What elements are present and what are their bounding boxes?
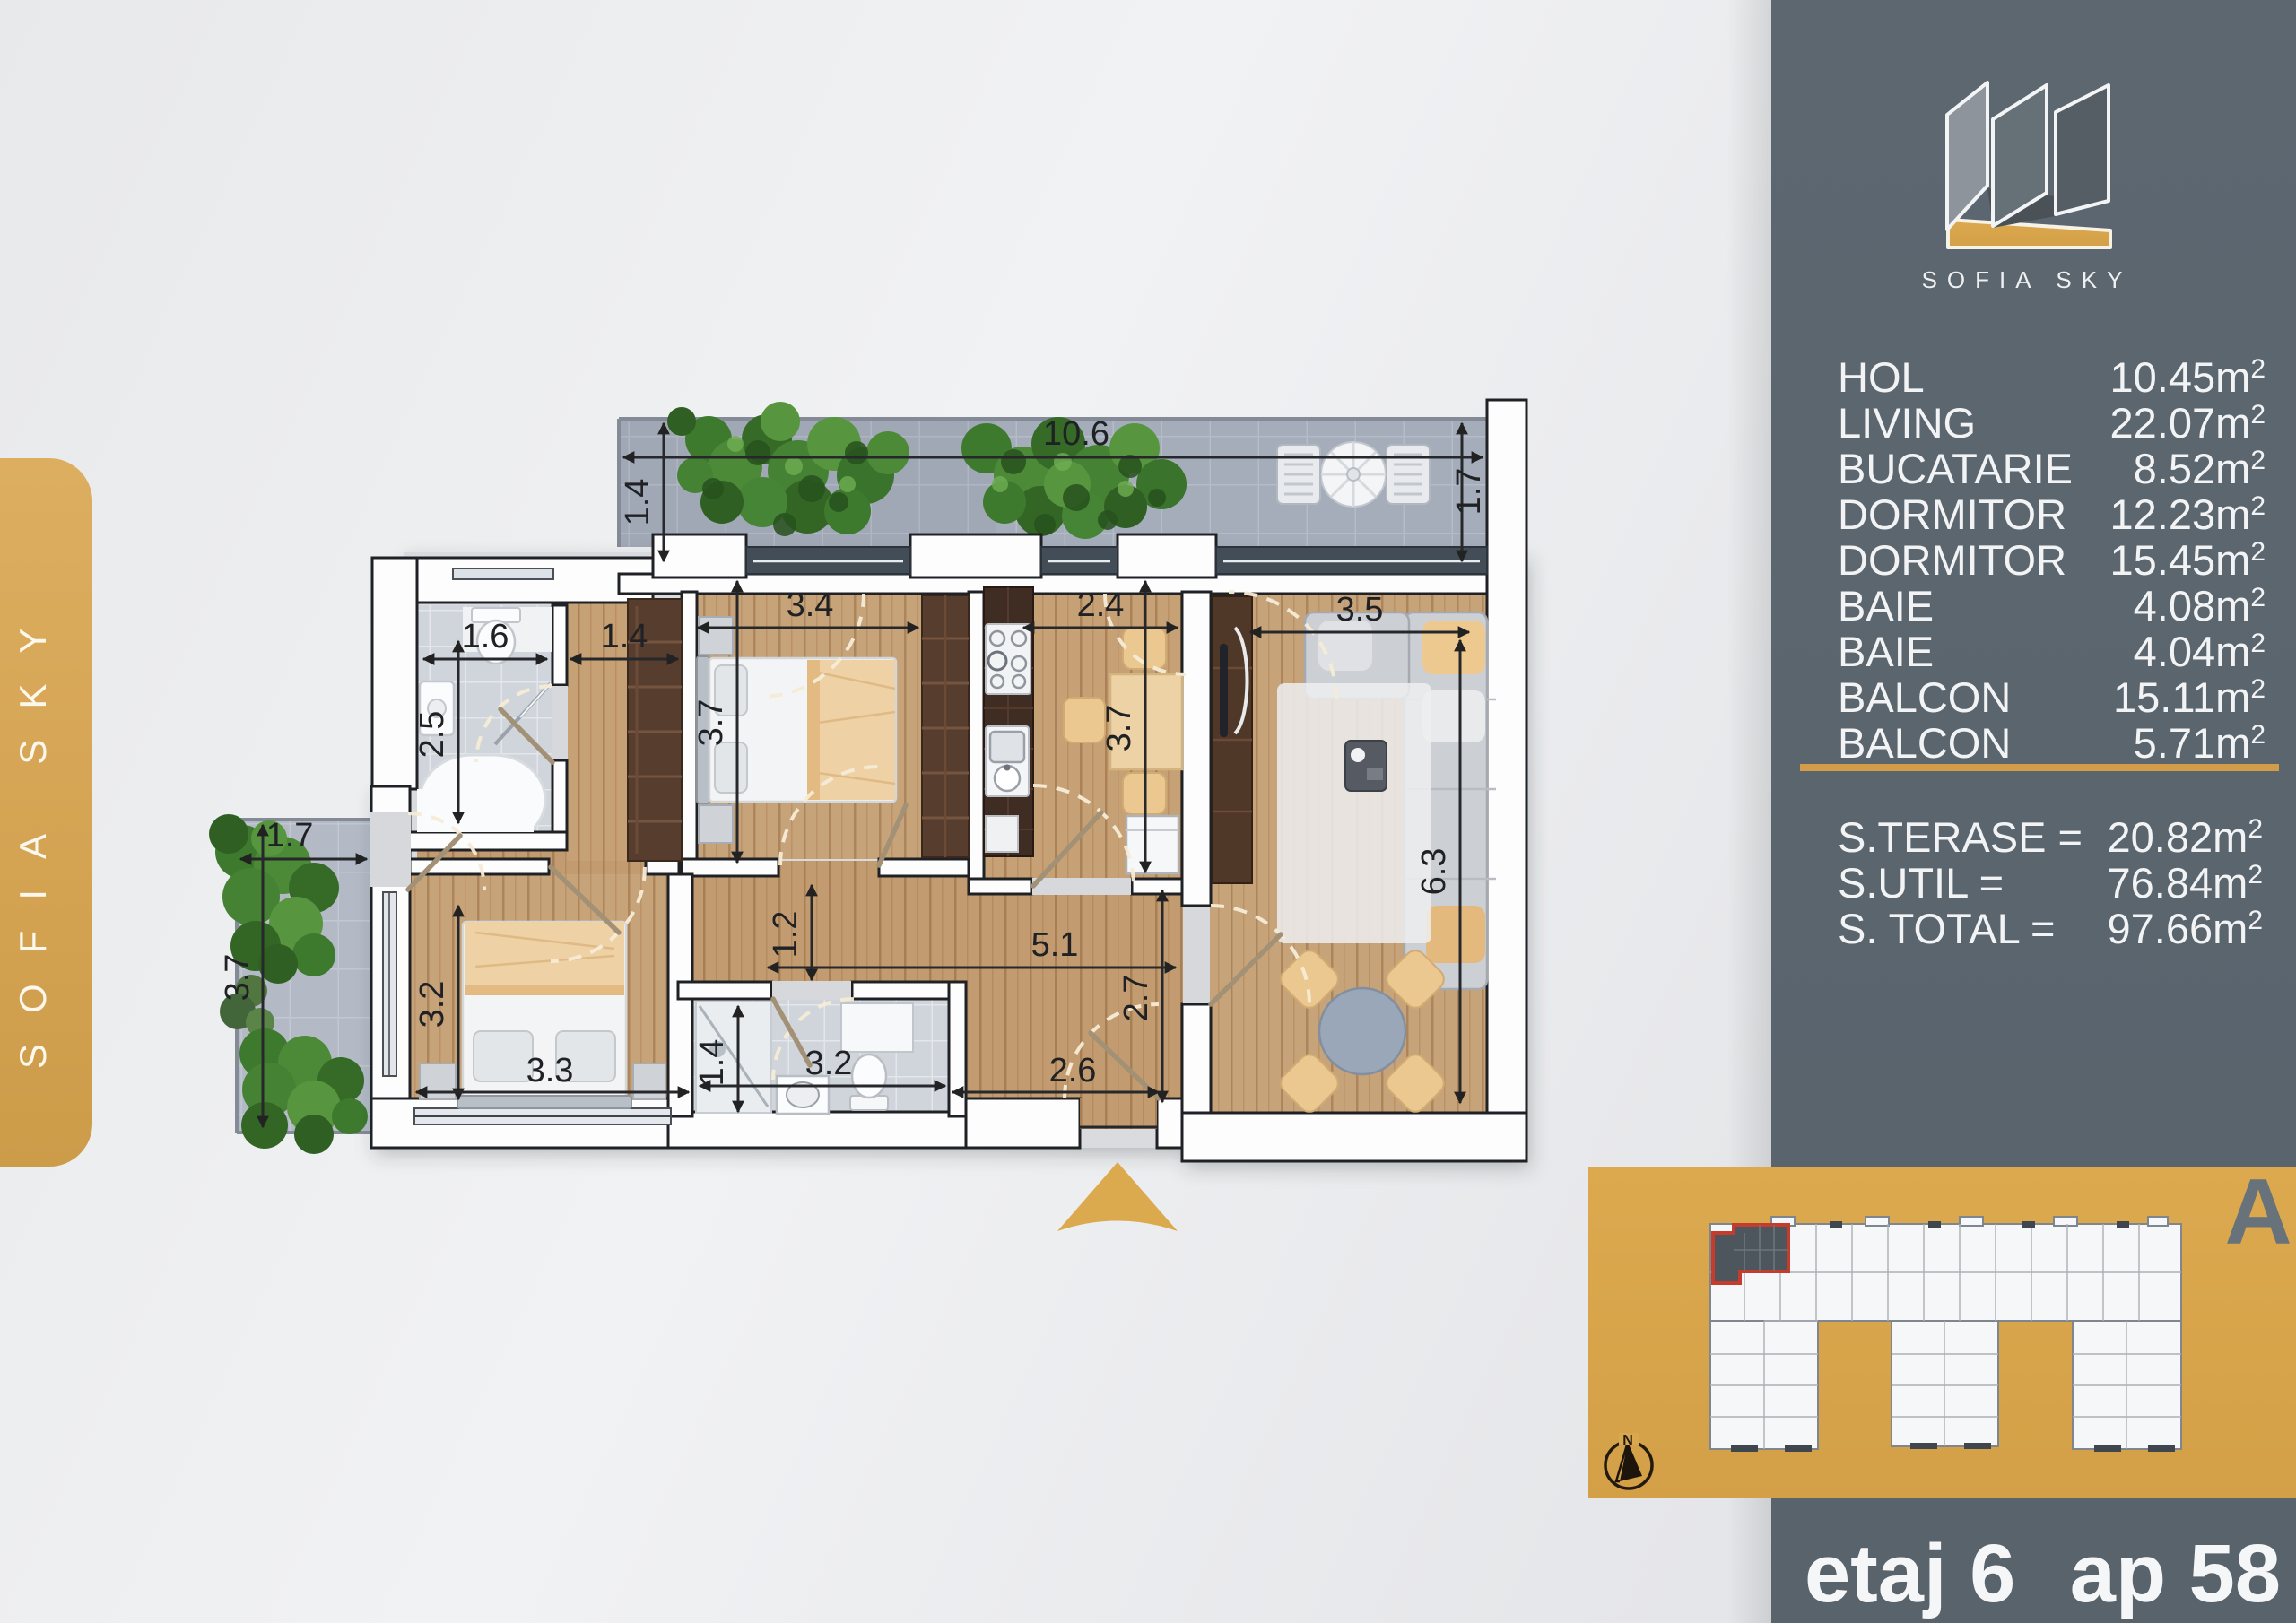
svg-text:20.82m2: 20.82m2	[2108, 813, 2263, 861]
svg-text:2.5: 2.5	[413, 711, 451, 759]
svg-text:SOFIA SKY: SOFIA SKY	[1922, 266, 2133, 293]
svg-text:BALCON: BALCON	[1838, 673, 2011, 721]
svg-text:BAIE: BAIE	[1838, 582, 1934, 629]
svg-text:4.08m2: 4.08m2	[2134, 582, 2266, 629]
svg-text:3.2: 3.2	[413, 981, 451, 1028]
svg-text:3.7: 3.7	[692, 699, 730, 747]
svg-text:S.TERASE =: S.TERASE =	[1838, 813, 2083, 861]
svg-text:3.7: 3.7	[1100, 705, 1138, 752]
svg-text:BUCATARIE: BUCATARIE	[1838, 445, 2073, 492]
svg-text:LIVING: LIVING	[1838, 399, 1976, 447]
svg-text:4.04m2: 4.04m2	[2134, 628, 2266, 675]
svg-text:10.45m2: 10.45m2	[2110, 353, 2266, 401]
svg-text:1.6: 1.6	[462, 618, 509, 655]
svg-text:5.71m2: 5.71m2	[2134, 719, 2266, 767]
svg-text:HOL: HOL	[1838, 353, 1925, 401]
svg-text:BAIE: BAIE	[1838, 628, 1934, 675]
svg-text:DORMITOR: DORMITOR	[1838, 490, 2066, 538]
svg-text:1.4: 1.4	[601, 618, 648, 655]
svg-text:8.52m2: 8.52m2	[2134, 445, 2266, 492]
svg-text:1.2: 1.2	[767, 911, 804, 959]
svg-text:3.4: 3.4	[787, 586, 834, 624]
svg-text:2.7: 2.7	[1118, 975, 1155, 1022]
svg-text:15.45m2: 15.45m2	[2110, 536, 2266, 584]
svg-text:BALCON: BALCON	[1838, 719, 2011, 767]
svg-text:S.UTIL =: S.UTIL =	[1838, 859, 2004, 907]
svg-text:10.6: 10.6	[1043, 415, 1109, 453]
svg-text:76.84m2: 76.84m2	[2108, 859, 2263, 907]
svg-text:6.3: 6.3	[1415, 848, 1453, 896]
svg-text:1.4: 1.4	[693, 1039, 731, 1087]
svg-text:1.7: 1.7	[1450, 468, 1488, 516]
svg-text:1.4: 1.4	[619, 479, 657, 526]
svg-text:15.11m2: 15.11m2	[2113, 673, 2266, 721]
svg-text:ap 58: ap 58	[2070, 1528, 2281, 1619]
svg-text:3.2: 3.2	[805, 1045, 853, 1082]
svg-text:3.7: 3.7	[219, 954, 257, 1002]
svg-text:22.07m2: 22.07m2	[2110, 399, 2266, 447]
svg-text:etaj 6: etaj 6	[1805, 1528, 2015, 1619]
svg-text:3.3: 3.3	[526, 1052, 574, 1089]
svg-text:DORMITOR: DORMITOR	[1838, 536, 2066, 584]
svg-text:2.6: 2.6	[1049, 1052, 1097, 1089]
svg-text:N: N	[1622, 1433, 1633, 1448]
svg-text:5.1: 5.1	[1031, 926, 1079, 964]
svg-text:3.5: 3.5	[1336, 591, 1384, 629]
svg-text:SOFIA SKY: SOFIA SKY	[12, 598, 54, 1069]
svg-text:1.7: 1.7	[266, 817, 314, 855]
svg-text:97.66m2: 97.66m2	[2108, 905, 2263, 952]
svg-text:A: A	[2224, 1160, 2292, 1264]
svg-text:12.23m2: 12.23m2	[2110, 490, 2266, 538]
svg-text:S. TOTAL =: S. TOTAL =	[1838, 905, 2056, 952]
svg-text:2.4: 2.4	[1077, 586, 1125, 624]
